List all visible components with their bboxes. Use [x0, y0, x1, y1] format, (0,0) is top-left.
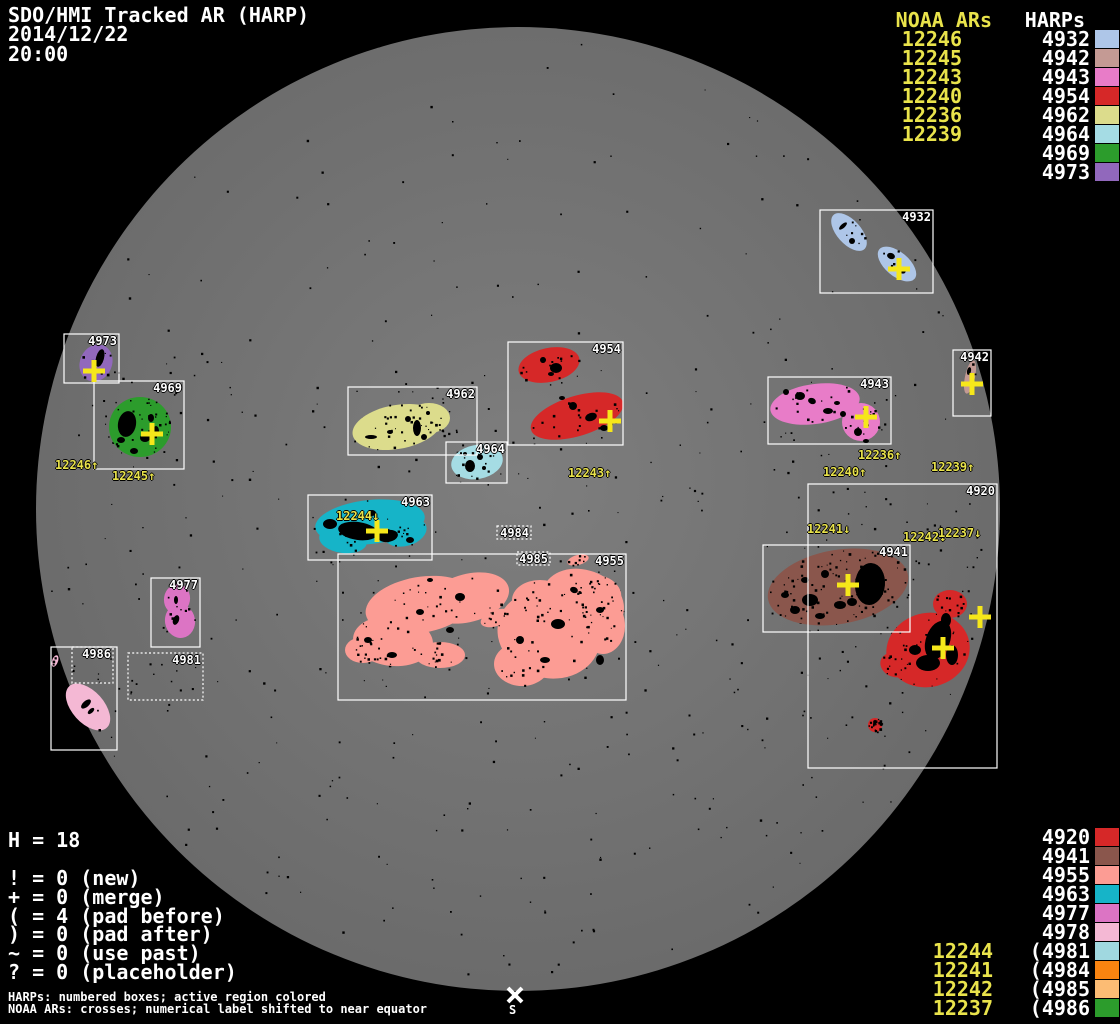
harp-label-4986: 4986: [82, 648, 111, 661]
legend-color-swatch: [1095, 106, 1119, 124]
noaa-disk-label: 12243↑: [568, 467, 611, 480]
harp-label-4977: 4977: [169, 579, 198, 592]
harp-label-4932: 4932: [902, 211, 931, 224]
legend-color-swatch: [1095, 866, 1119, 884]
legend-color-swatch: [1095, 999, 1119, 1017]
legend-color-swatch: [1095, 68, 1119, 86]
harp-label-4984: 4984: [500, 527, 529, 540]
symbol-stat-line: ? = 0 (placeholder): [8, 963, 237, 982]
noaa-disk-label: 12244↓: [336, 510, 379, 523]
harp-label-4943: 4943: [860, 378, 889, 391]
harp-label-4963: 4963: [401, 496, 430, 509]
legend-color-swatch: [1095, 144, 1119, 162]
legend-color-swatch: [1095, 30, 1119, 48]
legend-color-swatch: [1095, 49, 1119, 67]
noaa-disk-label: 12246↑: [55, 459, 98, 472]
harp-label-4942: 4942: [960, 351, 989, 364]
legend-row: 4973: [880, 163, 1119, 182]
noaa-disk-label: 12237↓: [938, 527, 981, 540]
legend-color-swatch: [1095, 125, 1119, 143]
south-pole-label: S: [509, 1004, 516, 1017]
noaa-disk-label: 12239↑: [931, 461, 974, 474]
harp-label-4954: 4954: [592, 343, 621, 356]
harp-count-line: H = 18: [8, 831, 80, 850]
harp-label-4964: 4964: [476, 443, 505, 456]
legend-color-swatch: [1095, 87, 1119, 105]
title-block: SDO/HMI Tracked AR (HARP) 2014/12/22 20:…: [8, 6, 309, 64]
solar-disk: [36, 27, 1000, 991]
noaa-disk-label: 12236↑: [858, 449, 901, 462]
harp-label-4941: 4941: [879, 546, 908, 559]
harp-label-4962: 4962: [446, 388, 475, 401]
footer-line2: NOAA ARs: crosses; numerical label shift…: [8, 1004, 427, 1016]
noaa-disk-label: 12241↓: [807, 523, 850, 536]
legend-color-swatch: [1095, 961, 1119, 979]
legend-color-swatch: [1095, 980, 1119, 998]
legend-color-swatch: [1095, 828, 1119, 846]
legend-noaa-value: 12239: [880, 125, 962, 144]
noaa-disk-label: 12245↑: [112, 470, 155, 483]
harp-tracking-plot: { "chart_data": { "type": "table", "titl…: [0, 0, 1120, 1024]
legend-harp-value: 4973: [962, 163, 1090, 182]
symbol-stat-lines: ! = 0 (new)+ = 0 (merge)( = 4 (pad befor…: [8, 869, 237, 982]
time-label: 20:00: [8, 45, 309, 64]
legend-color-swatch: [1095, 885, 1119, 903]
legend-color-swatch: [1095, 163, 1119, 181]
legend-color-swatch: [1095, 923, 1119, 941]
harp-label-4969: 4969: [153, 382, 182, 395]
legend-row: 12237(4986: [880, 999, 1119, 1018]
legend-color-swatch: [1095, 904, 1119, 922]
legend-harp-value: (4986: [993, 999, 1090, 1018]
noaa-disk-label: 12240↑: [823, 466, 866, 479]
harp-label-4920: 4920: [966, 485, 995, 498]
harp-label-4973: 4973: [88, 335, 117, 348]
harp-label-4955: 4955: [595, 555, 624, 568]
legend-noaa-value: 12237: [880, 999, 993, 1018]
harp-label-4981: 4981: [172, 654, 201, 667]
legend-color-swatch: [1095, 942, 1119, 960]
legend-color-swatch: [1095, 847, 1119, 865]
harp-label-4985: 4985: [519, 553, 548, 566]
